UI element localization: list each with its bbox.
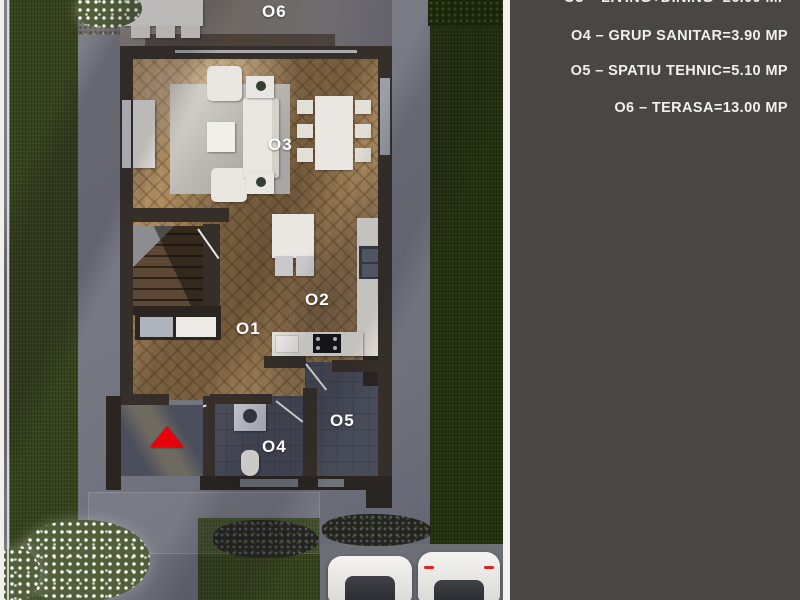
armchair	[211, 168, 247, 202]
grass-strip-left	[10, 0, 78, 600]
window-bottom	[318, 479, 344, 487]
legend-line-o3: O3 – LIVING+DINING=26.00 MP	[518, 0, 788, 10]
dining-chair	[297, 100, 313, 114]
dining-table	[315, 96, 353, 170]
wall-entry	[121, 394, 169, 405]
car-windshield	[434, 580, 484, 600]
terrace-chair	[131, 26, 150, 38]
hedge-top-right	[428, 0, 503, 26]
vanity-basin	[243, 409, 257, 423]
dining-chair	[297, 124, 313, 138]
dining-chair	[355, 124, 371, 138]
flowering-tree	[18, 520, 150, 600]
burner-icon	[333, 346, 337, 350]
toilet-icon	[241, 450, 259, 476]
kitchen-chair	[296, 256, 314, 276]
plant-icon	[256, 81, 266, 91]
grass-strip-right	[430, 0, 503, 546]
legend-line-o4: O4 – GRUP SANITAR=3.90 MP	[518, 28, 788, 48]
room-label-o3: O3	[268, 135, 293, 155]
window-left	[122, 100, 131, 168]
legend-line-o6: O6 – TERASA=13.00 MP	[518, 100, 788, 120]
wall-o4-o5	[303, 388, 317, 478]
entrance-marker	[150, 426, 184, 447]
fence-line	[7, 0, 9, 600]
kitchen-chair	[275, 256, 293, 276]
tv-cabinet	[133, 100, 155, 168]
armchair	[207, 66, 242, 101]
terrace-chair	[156, 26, 175, 38]
taillight-icon	[484, 566, 494, 569]
floor-plan-render: O6 O3 O2 O1 O4 O5	[0, 0, 503, 600]
sideboard-door	[140, 317, 173, 337]
room-label-o6: O6	[262, 2, 287, 22]
dining-chair	[297, 148, 313, 162]
panel-separator	[503, 0, 510, 600]
sliding-glass-door	[175, 50, 357, 53]
legend-panel: O3 – LIVING+DINING=26.00 MP O4 – GRUP SA…	[510, 0, 800, 600]
shrub-row	[322, 514, 432, 546]
room-label-o4: O4	[262, 437, 287, 457]
wall-kitchen-bottom	[264, 356, 306, 368]
property-border	[0, 0, 4, 600]
dining-chair	[355, 100, 371, 114]
room-label-o1: O1	[236, 319, 261, 339]
terrace-chair	[181, 26, 200, 38]
shrub-row	[213, 520, 319, 558]
plant-icon	[256, 177, 266, 187]
staircase-shade	[133, 226, 208, 310]
room-label-o5: O5	[330, 411, 355, 431]
burner-icon	[316, 337, 320, 341]
taillight-icon	[424, 566, 434, 569]
window-bottom	[240, 479, 298, 487]
exterior-unit	[366, 488, 392, 508]
dining-chair	[355, 148, 371, 162]
wall-hall-o4	[203, 396, 215, 480]
coffee-table	[207, 122, 235, 152]
kitchen-table	[272, 214, 314, 258]
wall-living-divider	[133, 208, 229, 222]
flowering-tree	[0, 548, 40, 600]
kitchen-sink-2	[275, 335, 299, 353]
car-windshield	[345, 576, 395, 600]
burner-icon	[316, 346, 320, 350]
sideboard-door	[176, 317, 216, 337]
wall-porch-left	[106, 396, 121, 490]
room-label-o2: O2	[305, 290, 330, 310]
window-right	[380, 78, 390, 155]
burner-icon	[333, 337, 337, 341]
legend-line-o5: O5 – SPATIU TEHNIC=5.10 MP	[518, 63, 788, 83]
screenshot-root: O6 O3 O2 O1 O4 O5 O3 – LIVING+DINING=26.…	[0, 0, 800, 600]
wall-o4-top	[210, 394, 272, 404]
